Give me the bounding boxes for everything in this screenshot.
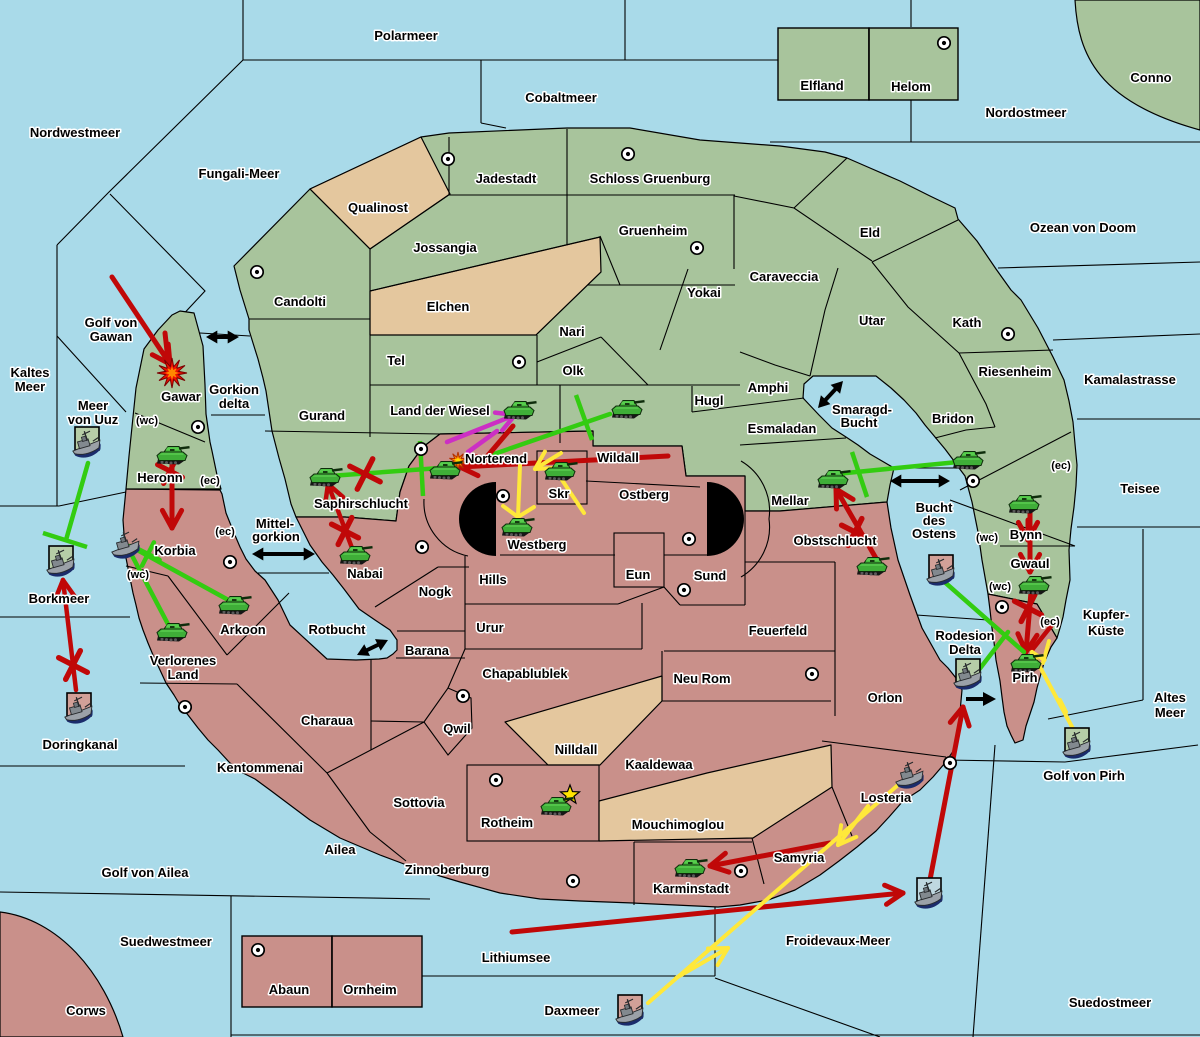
svg-text:Barana: Barana — [405, 643, 450, 658]
svg-text:Nordwestmeer: Nordwestmeer — [30, 125, 120, 140]
svg-text:Jossangia: Jossangia — [413, 240, 477, 255]
svg-text:Korbia: Korbia — [154, 543, 196, 558]
svg-text:Gawan: Gawan — [90, 329, 133, 344]
svg-text:(wc): (wc) — [989, 581, 1011, 593]
svg-text:(wc): (wc) — [136, 415, 158, 427]
svg-text:Elfland: Elfland — [800, 78, 843, 93]
svg-text:Verlorenes: Verlorenes — [150, 653, 217, 668]
svg-text:Nordostmeer: Nordostmeer — [986, 105, 1067, 120]
svg-text:Rotbucht: Rotbucht — [308, 622, 366, 637]
svg-text:Fungali-Meer: Fungali-Meer — [199, 166, 280, 181]
svg-text:Golf von: Golf von — [85, 315, 138, 330]
svg-text:Kentommenai: Kentommenai — [217, 760, 303, 775]
svg-text:Altes: Altes — [1154, 690, 1186, 705]
svg-text:(ec): (ec) — [200, 475, 220, 487]
svg-text:(wc): (wc) — [127, 569, 149, 581]
svg-text:Sottovia: Sottovia — [393, 795, 445, 810]
svg-text:Nabai: Nabai — [347, 566, 382, 581]
svg-text:Kaaldewaa: Kaaldewaa — [625, 757, 693, 772]
svg-text:Sund: Sund — [694, 568, 727, 583]
svg-text:Yokai: Yokai — [687, 285, 721, 300]
svg-text:Doringkanal: Doringkanal — [42, 737, 117, 752]
svg-text:Golf von Ailea: Golf von Ailea — [102, 865, 190, 880]
svg-text:Meer: Meer — [1155, 705, 1185, 720]
svg-text:(ec): (ec) — [215, 526, 235, 538]
svg-text:gorkion: gorkion — [252, 529, 300, 544]
svg-text:Suedostmeer: Suedostmeer — [1069, 995, 1151, 1010]
svg-text:Hills: Hills — [479, 572, 506, 587]
svg-text:Heronn: Heronn — [137, 470, 183, 485]
svg-text:Amphi: Amphi — [748, 380, 788, 395]
svg-text:Kupfer-: Kupfer- — [1083, 607, 1129, 622]
svg-text:Ostberg: Ostberg — [619, 487, 669, 502]
svg-text:Neu Rom: Neu Rom — [673, 671, 730, 686]
svg-text:Meer: Meer — [78, 398, 108, 413]
svg-text:Küste: Küste — [1088, 623, 1124, 638]
svg-text:Saphirschlucht: Saphirschlucht — [314, 496, 409, 511]
svg-text:Gurand: Gurand — [299, 408, 345, 423]
svg-text:Hugl: Hugl — [695, 393, 724, 408]
svg-text:Conno: Conno — [1130, 70, 1171, 85]
svg-text:Rodesion: Rodesion — [935, 628, 994, 643]
svg-text:Nari: Nari — [559, 324, 584, 339]
svg-text:Losteria: Losteria — [861, 790, 912, 805]
svg-text:Skr: Skr — [549, 486, 570, 501]
svg-text:Jadestadt: Jadestadt — [476, 171, 537, 186]
svg-text:Meer: Meer — [15, 379, 45, 394]
svg-text:Pirh: Pirh — [1012, 670, 1037, 685]
svg-text:Mellar: Mellar — [771, 493, 809, 508]
svg-text:Schloss Gruenburg: Schloss Gruenburg — [590, 171, 711, 186]
svg-text:Caraveccia: Caraveccia — [750, 269, 819, 284]
svg-text:Qualinost: Qualinost — [348, 200, 409, 215]
svg-text:Kaltes: Kaltes — [10, 365, 49, 380]
svg-text:Gwaul: Gwaul — [1010, 556, 1049, 571]
svg-text:Nogk: Nogk — [419, 584, 452, 599]
svg-text:Urur: Urur — [476, 620, 503, 635]
svg-text:(wc): (wc) — [976, 532, 998, 544]
svg-text:delta: delta — [219, 396, 250, 411]
svg-text:Ailea: Ailea — [324, 842, 356, 857]
svg-text:Tel: Tel — [387, 353, 405, 368]
svg-text:Polarmeer: Polarmeer — [374, 28, 438, 43]
svg-text:Riesenheim: Riesenheim — [979, 364, 1052, 379]
svg-text:Teisee: Teisee — [1120, 481, 1160, 496]
svg-text:Wildall: Wildall — [597, 450, 639, 465]
svg-text:Gruenheim: Gruenheim — [619, 223, 688, 238]
svg-text:Ozean von Doom: Ozean von Doom — [1030, 220, 1136, 235]
svg-text:Karminstadt: Karminstadt — [653, 881, 730, 896]
svg-text:Westberg: Westberg — [508, 537, 567, 552]
svg-text:Helom: Helom — [891, 79, 931, 94]
svg-text:Olk: Olk — [563, 363, 585, 378]
svg-text:Charaua: Charaua — [301, 713, 354, 728]
svg-text:Nilldall: Nilldall — [555, 742, 598, 757]
svg-text:Eun: Eun — [626, 567, 651, 582]
svg-text:Mouchimoglou: Mouchimoglou — [632, 817, 724, 832]
svg-text:Abaun: Abaun — [269, 982, 310, 997]
svg-text:Samyria: Samyria — [774, 850, 825, 865]
svg-text:Golf von Pirh: Golf von Pirh — [1043, 768, 1125, 783]
svg-text:Land der Wiesel: Land der Wiesel — [390, 403, 490, 418]
svg-text:Ostens: Ostens — [912, 526, 956, 541]
svg-text:Kamalastrasse: Kamalastrasse — [1084, 372, 1176, 387]
svg-text:Cobaltmeer: Cobaltmeer — [525, 90, 597, 105]
svg-text:Candolti: Candolti — [274, 294, 326, 309]
svg-text:Utar: Utar — [859, 313, 885, 328]
svg-text:Norterend: Norterend — [465, 451, 527, 466]
svg-text:Suedwestmeer: Suedwestmeer — [120, 934, 212, 949]
svg-text:Bucht: Bucht — [841, 415, 879, 430]
svg-text:Arkoon: Arkoon — [220, 622, 266, 637]
svg-text:Bridon: Bridon — [932, 411, 974, 426]
svg-text:Rotheim: Rotheim — [481, 815, 533, 830]
svg-text:Borkmeer: Borkmeer — [29, 591, 90, 606]
svg-text:Feuerfeld: Feuerfeld — [749, 623, 808, 638]
svg-text:Land: Land — [167, 667, 198, 682]
svg-text:Lithiumsee: Lithiumsee — [482, 950, 551, 965]
svg-text:Obstschlucht: Obstschlucht — [793, 533, 877, 548]
svg-text:Eld: Eld — [860, 225, 880, 240]
svg-text:(ec): (ec) — [1040, 616, 1060, 628]
svg-text:Qwil: Qwil — [443, 721, 470, 736]
svg-text:Chapablublek: Chapablublek — [482, 666, 568, 681]
svg-text:Gorkion: Gorkion — [209, 382, 259, 397]
svg-text:(ec): (ec) — [1051, 460, 1071, 472]
svg-text:von Uuz: von Uuz — [68, 412, 119, 427]
svg-text:Corws: Corws — [66, 1003, 106, 1018]
svg-text:Delta: Delta — [949, 642, 982, 657]
svg-text:Daxmeer: Daxmeer — [545, 1003, 600, 1018]
svg-text:Froidevaux-Meer: Froidevaux-Meer — [786, 933, 890, 948]
svg-text:Kath: Kath — [953, 315, 982, 330]
svg-text:Elchen: Elchen — [427, 299, 470, 314]
svg-text:Gawar: Gawar — [161, 389, 201, 404]
svg-text:Esmaladan: Esmaladan — [748, 421, 817, 436]
svg-text:Ornheim: Ornheim — [343, 982, 396, 997]
svg-text:Bynn: Bynn — [1010, 527, 1043, 542]
svg-text:Orlon: Orlon — [868, 690, 903, 705]
svg-text:Zinnoberburg: Zinnoberburg — [405, 862, 490, 877]
